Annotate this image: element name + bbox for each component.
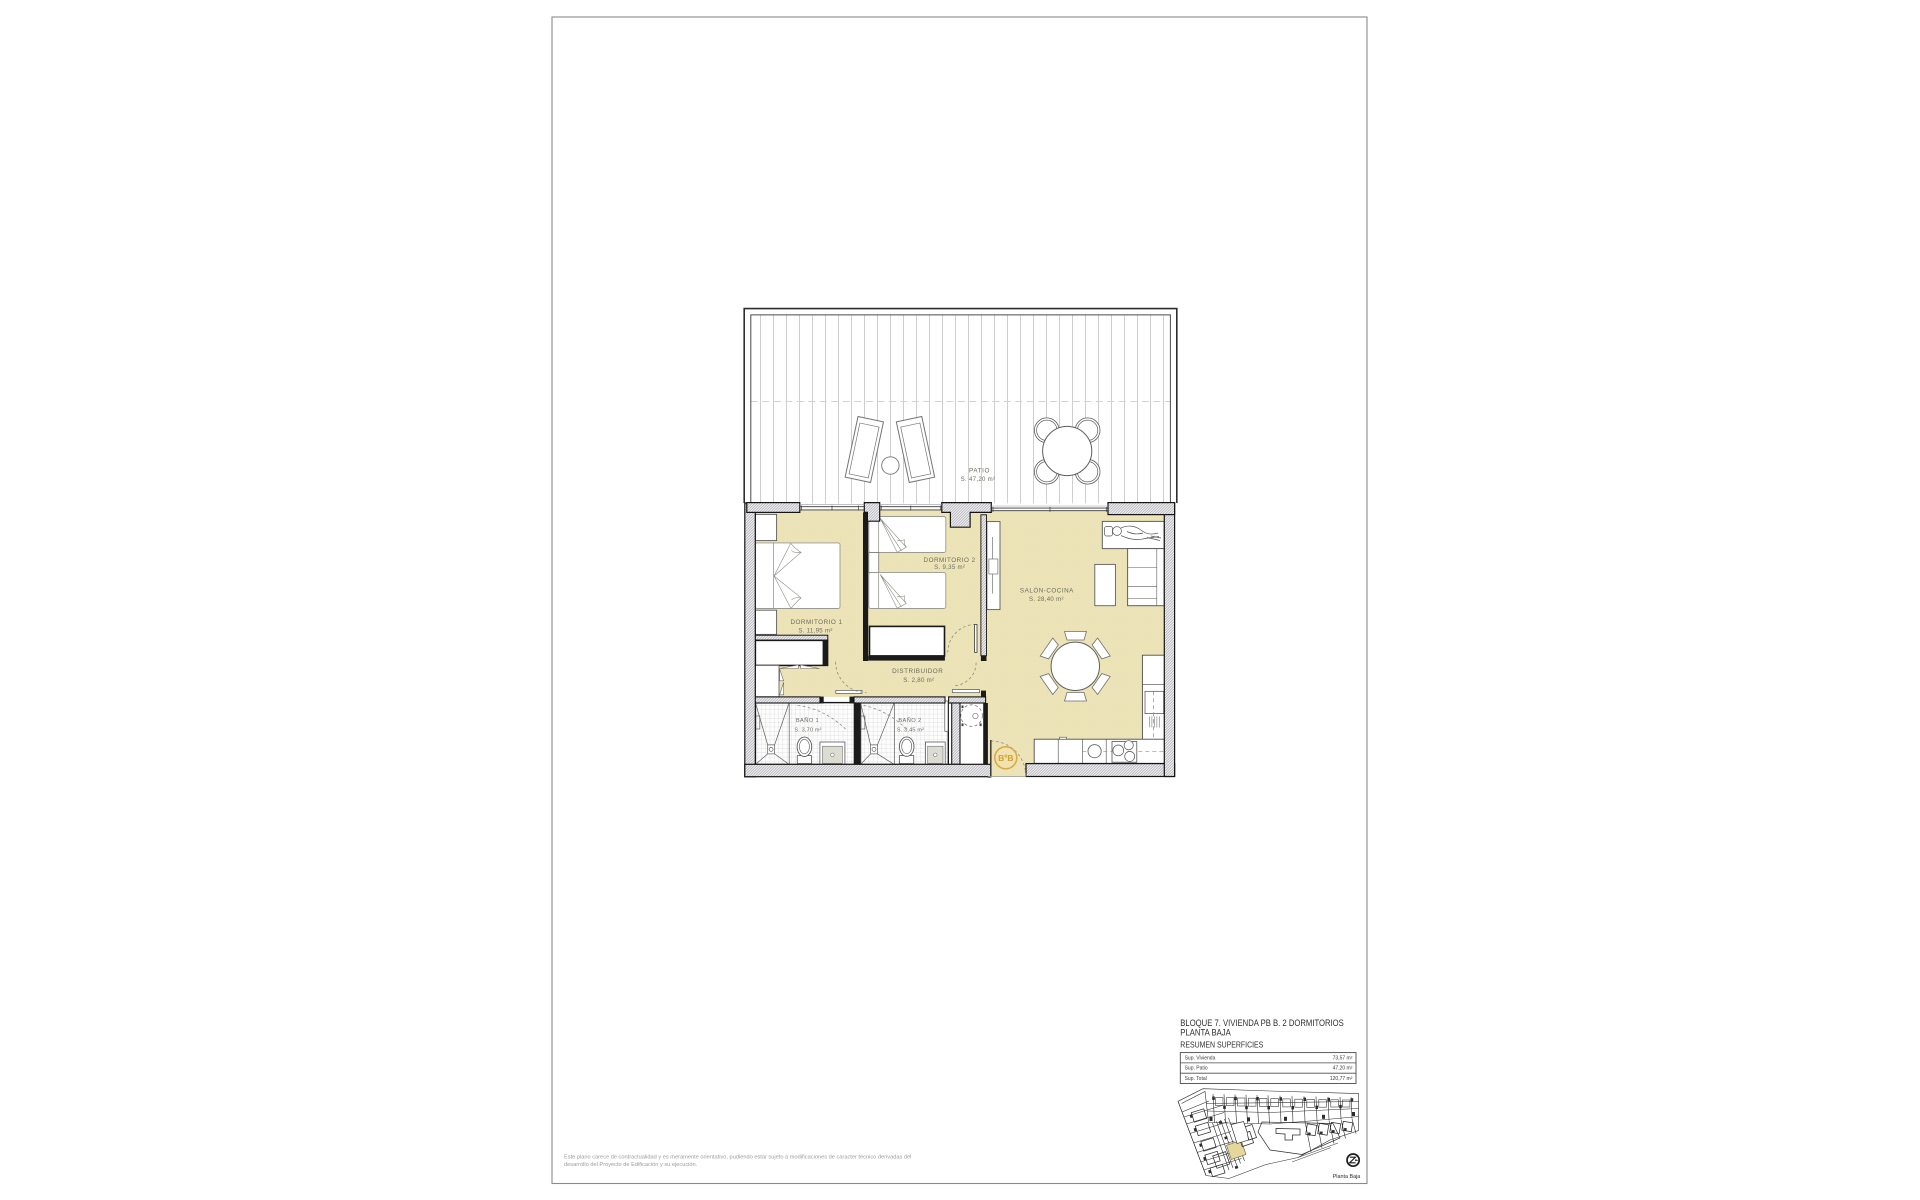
svg-text:S. 2,80 m²: S. 2,80 m²	[903, 677, 934, 684]
svg-text:Este plano carece de contractu: Este plano carece de contractualidad y e…	[564, 1155, 911, 1161]
svg-text:SALÓN-COCINA: SALÓN-COCINA	[1020, 586, 1074, 595]
svg-text:BAÑO 1: BAÑO 1	[796, 717, 819, 724]
svg-text:BºB: BºB	[998, 753, 1013, 763]
svg-text:Planta Baja: Planta Baja	[1333, 1174, 1361, 1180]
svg-text:47,20 m²: 47,20 m²	[1333, 1066, 1353, 1072]
svg-text:120,77 m²: 120,77 m²	[1330, 1076, 1353, 1082]
svg-text:BLOQUE 7. VIVIENDA PB B. 2 DOR: BLOQUE 7. VIVIENDA PB B. 2 DORMITORIOS	[1180, 1018, 1344, 1028]
svg-text:desarrollo del Proyecto de Edi: desarrollo del Proyecto de Edificación y…	[564, 1162, 698, 1168]
svg-text:PATIO: PATIO	[969, 468, 990, 475]
svg-text:S. 28,40 m²: S. 28,40 m²	[1029, 596, 1064, 603]
svg-text:S. 11,95 m²: S. 11,95 m²	[798, 628, 832, 635]
svg-text:BAÑO 2: BAÑO 2	[898, 717, 921, 724]
svg-text:Sup. Vivienda: Sup. Vivienda	[1185, 1055, 1216, 1061]
svg-text:S. 3,70 m²: S. 3,70 m²	[794, 727, 821, 733]
svg-text:DORMITORIO 2: DORMITORIO 2	[924, 557, 976, 564]
svg-text:RESUMEN SUPERFICIES: RESUMEN SUPERFICIES	[1180, 1039, 1263, 1049]
svg-text:S. 9,35 m²: S. 9,35 m²	[934, 564, 965, 571]
svg-text:DORMITORIO 1: DORMITORIO 1	[790, 619, 842, 626]
svg-text:73,57 m²: 73,57 m²	[1333, 1055, 1353, 1061]
svg-text:Sup. Patio: Sup. Patio	[1185, 1066, 1208, 1072]
svg-text:S. 47,20 m²: S. 47,20 m²	[961, 476, 996, 483]
svg-text:DISTRIBUIDOR: DISTRIBUIDOR	[892, 668, 943, 675]
svg-text:PLANTA BAJA: PLANTA BAJA	[1180, 1028, 1231, 1038]
svg-text:S. 3,45 m²: S. 3,45 m²	[897, 727, 924, 733]
svg-text:Sup. Total: Sup. Total	[1185, 1076, 1207, 1082]
